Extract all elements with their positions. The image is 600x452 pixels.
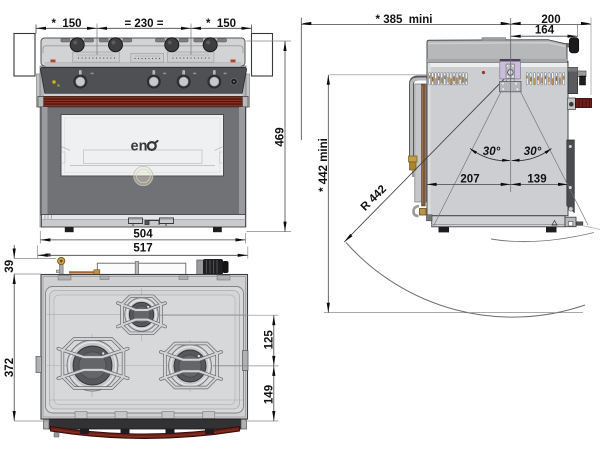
svg-text:* 385 mini: * 385 mini xyxy=(376,14,433,26)
svg-text:372: 372 xyxy=(4,358,16,377)
svg-text:* 442 mini: * 442 mini xyxy=(318,138,330,192)
svg-text:517: 517 xyxy=(133,243,152,255)
svg-text:207: 207 xyxy=(460,174,479,186)
svg-text:* 150: * 150 xyxy=(206,18,236,30)
svg-text:469: 469 xyxy=(274,127,286,146)
svg-text:= 230 =: = 230 = xyxy=(124,18,163,30)
svg-text:125: 125 xyxy=(263,330,275,350)
svg-text:149: 149 xyxy=(263,385,275,404)
svg-text:30°: 30° xyxy=(483,146,501,158)
svg-text:504: 504 xyxy=(133,229,153,241)
svg-text:139: 139 xyxy=(527,174,546,186)
svg-text:30°: 30° xyxy=(524,146,542,158)
svg-text:* 150: * 150 xyxy=(51,18,81,30)
svg-text:en: en xyxy=(131,139,148,155)
svg-text:39: 39 xyxy=(4,260,16,273)
svg-text:164: 164 xyxy=(535,25,555,37)
